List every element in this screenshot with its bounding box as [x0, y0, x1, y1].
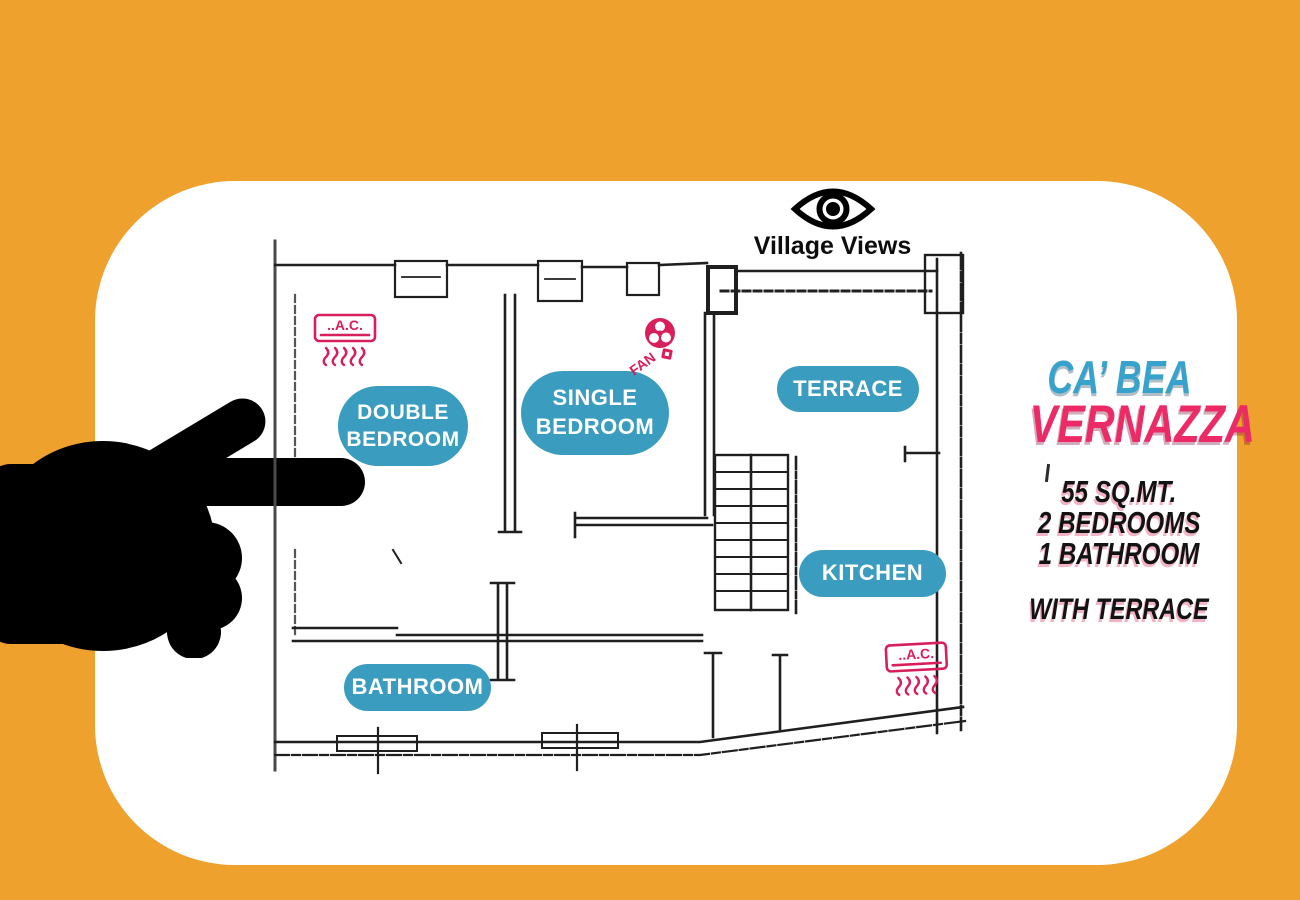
- listing-title-line2: VERNAZZA: [998, 400, 1240, 450]
- listing-spec-bedrooms: 2 BEDROOMS: [998, 507, 1240, 538]
- ac-label: ..A.C.: [327, 317, 363, 333]
- listing-spec-size: 55 SQ.MT.: [998, 476, 1240, 507]
- room-label-double-bedroom: DOUBLE BEDROOM: [338, 386, 468, 466]
- room-label-line: BEDROOM: [536, 413, 654, 442]
- room-label-line: BATHROOM: [352, 673, 484, 702]
- room-label-terrace: TERRACE: [777, 366, 919, 412]
- listing-feature: WITH TERRACE: [998, 593, 1240, 627]
- room-label-line: DOUBLE: [357, 399, 449, 426]
- room-label-line: KITCHEN: [822, 559, 923, 588]
- room-label-bathroom: BATHROOM: [344, 664, 491, 711]
- listing-title-line1: CA’ BEA: [998, 356, 1240, 400]
- room-label-line: TERRACE: [793, 375, 903, 404]
- ac-label: ..A.C.: [898, 645, 935, 663]
- poster-canvas: { "brand": { "name": "Village Views" }, …: [0, 0, 1300, 900]
- brand-logo: Village Views: [740, 184, 925, 261]
- fan-label: FAN: [626, 349, 658, 378]
- room-label-line: SINGLE: [553, 384, 638, 413]
- listing-info: CA’ BEA VERNAZZA 55 SQ.MT. 2 BEDROOMS 1 …: [998, 356, 1240, 627]
- room-label-line: BEDROOM: [346, 426, 459, 453]
- ac-icon: ..A.C.: [883, 639, 952, 700]
- brand-name: Village Views: [740, 232, 925, 261]
- eye-icon: [789, 184, 877, 234]
- listing-spec-bathrooms: 1 BATHROOM: [998, 538, 1240, 569]
- room-label-kitchen: KITCHEN: [799, 550, 946, 597]
- ac-icon: ..A.C.: [312, 312, 378, 370]
- fan-icon: FAN: [626, 314, 692, 384]
